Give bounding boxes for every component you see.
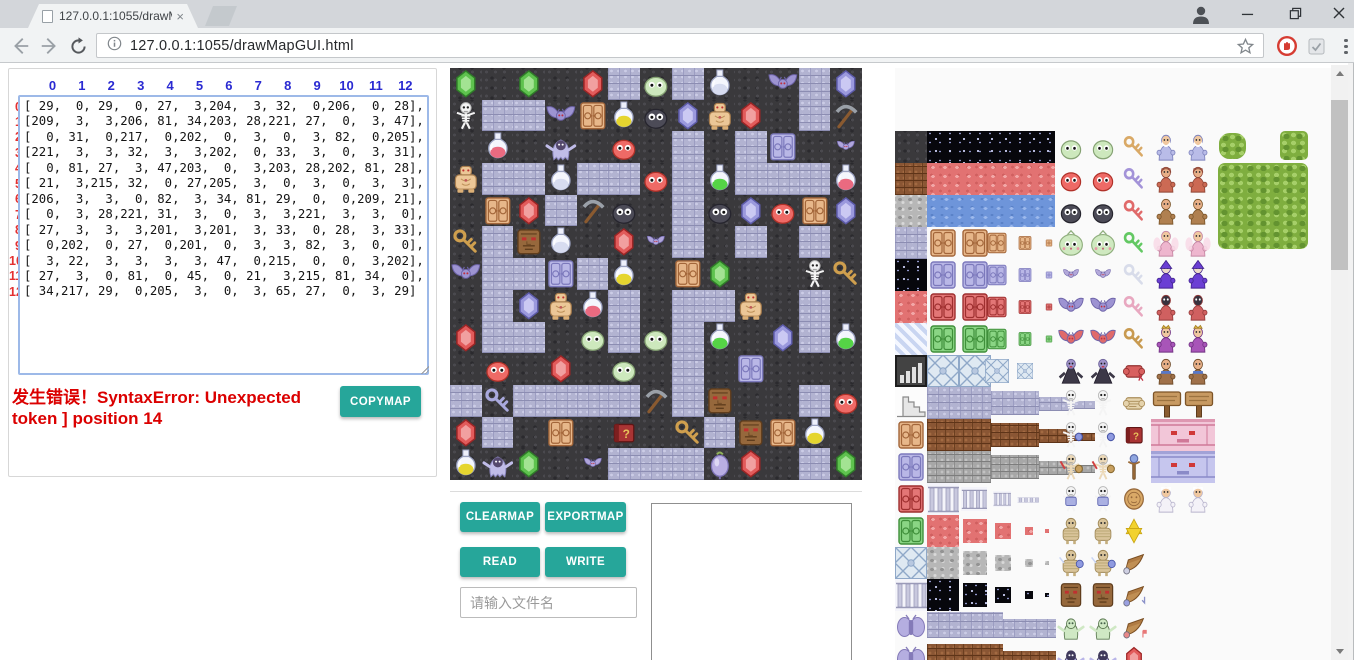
map-tile[interactable] (640, 322, 672, 354)
tileset-cell[interactable] (1045, 593, 1049, 597)
tileset-cell[interactable] (1183, 387, 1215, 419)
tileset-cell[interactable] (1057, 132, 1085, 162)
tileset-cell[interactable] (1121, 165, 1147, 193)
tileset-cell[interactable] (1121, 485, 1147, 513)
tileset-cell[interactable] (1153, 132, 1179, 162)
map-tile[interactable] (799, 131, 831, 163)
tileset-cell[interactable] (961, 487, 987, 511)
tileset-cell[interactable] (995, 555, 1011, 571)
tileset-cell[interactable] (1045, 335, 1053, 343)
map-tile[interactable] (577, 385, 609, 417)
tileset-cell[interactable] (1089, 388, 1117, 418)
map-tile[interactable] (545, 195, 577, 227)
map-tile[interactable] (704, 385, 736, 417)
browser-tab[interactable]: 127.0.0.1:1055/drawMa × (28, 4, 198, 28)
tileset-cell[interactable] (895, 419, 927, 451)
tileset-cell[interactable] (995, 587, 1011, 603)
map-tile[interactable] (640, 163, 672, 195)
tileset-cell[interactable] (1089, 228, 1117, 258)
map-tile[interactable] (704, 163, 736, 195)
map-tile[interactable] (608, 100, 640, 132)
map-tile[interactable] (735, 195, 767, 227)
tileset-cell[interactable] (1185, 260, 1211, 290)
tileset-cell[interactable] (1153, 484, 1179, 514)
tileset-cell[interactable] (985, 263, 1009, 287)
map-tile[interactable] (640, 385, 672, 417)
map-tile[interactable] (735, 322, 767, 354)
tileset-cell[interactable] (1121, 133, 1147, 161)
map-tile[interactable] (577, 417, 609, 449)
map-tile[interactable] (577, 226, 609, 258)
tileset-cell[interactable] (1121, 293, 1147, 321)
extension-check-icon[interactable] (1308, 38, 1325, 55)
tileset-cell[interactable] (1121, 453, 1147, 481)
map-tile[interactable] (830, 322, 862, 354)
map-tile[interactable] (672, 448, 704, 480)
map-matrix-textarea[interactable]: [ 29, 0, 29, 0, 27, 3,204, 3, 32, 0,206,… (18, 95, 429, 375)
map-tile[interactable] (640, 226, 672, 258)
tileset-cell[interactable] (1089, 452, 1117, 482)
read-button[interactable]: READ (460, 547, 540, 577)
map-tile[interactable] (450, 385, 482, 417)
tileset-cell[interactable] (1025, 591, 1033, 599)
map-tile[interactable] (767, 100, 799, 132)
tileset-cell[interactable] (1057, 580, 1085, 610)
map-tile[interactable] (799, 290, 831, 322)
map-canvas[interactable]: ? (450, 68, 862, 480)
map-tile[interactable] (735, 163, 767, 195)
tileset-cell[interactable] (985, 327, 1009, 351)
tileset-cell[interactable] (1003, 619, 1056, 638)
forward-icon[interactable] (38, 34, 62, 58)
tileset-cell[interactable] (895, 387, 927, 419)
tileset-cell[interactable] (1151, 451, 1215, 483)
map-tile[interactable] (767, 385, 799, 417)
tileset-cell[interactable] (1057, 228, 1085, 258)
map-tile[interactable] (672, 353, 704, 385)
map-tile[interactable] (830, 163, 862, 195)
map-tile[interactable] (545, 417, 577, 449)
tileset-cell[interactable] (927, 644, 1003, 660)
map-tile[interactable] (704, 100, 736, 132)
map-tile[interactable] (482, 68, 514, 100)
tileset-cell[interactable] (1089, 484, 1117, 514)
tileset-cell[interactable] (1185, 484, 1211, 514)
map-tile[interactable] (799, 322, 831, 354)
tileset-cell[interactable] (1089, 324, 1117, 354)
map-tile[interactable] (482, 258, 514, 290)
tileset-cell[interactable] (927, 259, 959, 291)
tileset-cell[interactable] (1045, 271, 1053, 279)
map-tile[interactable] (577, 68, 609, 100)
tileset-cell[interactable] (895, 451, 927, 483)
map-tile[interactable] (704, 322, 736, 354)
map-tile[interactable] (830, 448, 862, 480)
map-tile[interactable] (513, 195, 545, 227)
map-tile[interactable] (577, 448, 609, 480)
scroll-up-arrow[interactable] (1331, 65, 1348, 82)
map-tile[interactable] (545, 448, 577, 480)
tileset-cell[interactable] (895, 131, 927, 163)
map-tile[interactable] (482, 448, 514, 480)
clearmap-button[interactable]: CLEARMAP (460, 502, 540, 532)
map-tile[interactable] (799, 353, 831, 385)
tileset-cell[interactable] (895, 547, 927, 579)
map-tile[interactable] (767, 68, 799, 100)
map-tile[interactable] (640, 131, 672, 163)
tileset-cell[interactable] (1089, 548, 1117, 578)
map-tile[interactable] (513, 385, 545, 417)
tileset-cell[interactable] (1185, 324, 1211, 354)
tileset-cell[interactable] (1121, 389, 1147, 417)
map-tile[interactable] (799, 100, 831, 132)
map-tile[interactable] (672, 163, 704, 195)
tileset-cell[interactable] (991, 391, 1039, 415)
tileset-cell[interactable] (1121, 549, 1147, 577)
tileset-cell[interactable] (1057, 292, 1085, 322)
tileset-cell[interactable] (895, 291, 927, 323)
tileset-cell[interactable] (1089, 164, 1117, 194)
tileset-cell[interactable] (991, 423, 1039, 447)
profile-icon[interactable] (1190, 4, 1212, 24)
map-tile[interactable] (450, 322, 482, 354)
tileset-cell[interactable] (1151, 387, 1183, 419)
tileset-cell[interactable] (927, 579, 959, 611)
tileset-cell[interactable] (927, 612, 1003, 638)
map-tile[interactable] (545, 131, 577, 163)
map-tile[interactable] (672, 258, 704, 290)
tileset-cell[interactable] (1057, 612, 1085, 642)
map-tile[interactable] (608, 163, 640, 195)
window-close-button[interactable] (1322, 0, 1354, 26)
tileset-cell[interactable] (1017, 267, 1033, 283)
tileset-cell[interactable] (927, 163, 1055, 195)
tileset-cell[interactable] (1017, 331, 1033, 347)
map-tile[interactable] (608, 131, 640, 163)
tileset-cell[interactable]: ? (1121, 421, 1147, 449)
tileset-cell[interactable] (927, 387, 991, 419)
tileset-cell[interactable] (1057, 164, 1085, 194)
extension-hand-icon[interactable] (1276, 35, 1298, 57)
tileset-cell[interactable] (1185, 132, 1211, 162)
map-tile[interactable] (799, 417, 831, 449)
map-tile[interactable] (482, 290, 514, 322)
map-tile[interactable] (735, 226, 767, 258)
map-tile[interactable] (672, 195, 704, 227)
map-tile[interactable] (450, 195, 482, 227)
map-tile[interactable] (545, 290, 577, 322)
tileset-cell[interactable] (895, 355, 927, 387)
tileset-cell[interactable] (1153, 196, 1179, 226)
map-tile[interactable] (608, 226, 640, 258)
exportmap-button[interactable]: EXPORTMAP (545, 502, 626, 532)
tileset-cell[interactable] (985, 295, 1009, 319)
scrollbar-thumb[interactable] (1331, 100, 1348, 270)
map-tile[interactable] (704, 226, 736, 258)
map-tile[interactable] (577, 258, 609, 290)
tileset-cell[interactable] (1045, 529, 1049, 533)
map-tile[interactable] (640, 448, 672, 480)
tileset-cell[interactable] (1121, 517, 1147, 545)
map-tile[interactable] (704, 258, 736, 290)
window-minimize-button[interactable] (1230, 0, 1264, 26)
window-restore-button[interactable] (1278, 0, 1312, 26)
map-tile[interactable] (482, 322, 514, 354)
tileset-cell[interactable] (895, 259, 927, 291)
map-tile[interactable] (577, 131, 609, 163)
tileset-cell[interactable] (1185, 356, 1211, 386)
map-tile[interactable] (799, 163, 831, 195)
tileset-cell[interactable] (1089, 420, 1117, 450)
tileset-cell[interactable] (895, 643, 927, 660)
map-tile[interactable] (830, 68, 862, 100)
map-tile[interactable] (577, 195, 609, 227)
scroll-down-arrow[interactable] (1331, 643, 1348, 660)
map-tile[interactable] (735, 258, 767, 290)
tileset-cell[interactable] (993, 491, 1011, 507)
tileset-cell[interactable] (927, 323, 959, 355)
map-tile[interactable] (704, 417, 736, 449)
map-tile[interactable] (545, 226, 577, 258)
map-tile[interactable] (735, 448, 767, 480)
tileset-cell[interactable] (927, 515, 959, 547)
map-tile[interactable] (513, 258, 545, 290)
tileset-cell[interactable] (895, 515, 927, 547)
map-tile[interactable] (830, 131, 862, 163)
tileset-cell[interactable] (1151, 419, 1215, 451)
map-tile[interactable] (672, 100, 704, 132)
map-tile[interactable] (767, 353, 799, 385)
map-tile[interactable] (577, 322, 609, 354)
map-tile[interactable] (640, 417, 672, 449)
map-tile[interactable] (545, 322, 577, 354)
map-tile[interactable] (482, 163, 514, 195)
tileset-image[interactable]: ? (895, 68, 1331, 660)
tileset-cell[interactable] (1121, 229, 1147, 257)
tileset-cell[interactable] (895, 579, 927, 611)
tileset-cell[interactable] (1089, 196, 1117, 226)
tileset-cell[interactable] (1057, 516, 1085, 546)
map-tile[interactable] (704, 353, 736, 385)
tileset-cell[interactable] (1057, 196, 1085, 226)
map-tile[interactable] (450, 100, 482, 132)
map-tile[interactable] (450, 417, 482, 449)
tileset-cell[interactable] (1089, 292, 1117, 322)
map-tile[interactable] (513, 417, 545, 449)
menu-dots-icon[interactable] (1343, 36, 1349, 56)
map-tile[interactable] (513, 290, 545, 322)
map-tile[interactable] (640, 100, 672, 132)
map-tile[interactable] (482, 417, 514, 449)
map-tile[interactable] (545, 353, 577, 385)
tileset-cell[interactable] (1057, 548, 1085, 578)
tileset-cell[interactable] (985, 231, 1009, 255)
tileset-cell[interactable] (1121, 581, 1147, 609)
tileset-cell[interactable] (927, 227, 959, 259)
tileset-cell[interactable] (895, 227, 927, 259)
map-tile[interactable] (450, 353, 482, 385)
map-tile[interactable] (482, 195, 514, 227)
tileset-cell[interactable] (895, 483, 927, 515)
textarea-resize-grip[interactable] (421, 366, 429, 374)
map-tile[interactable] (513, 100, 545, 132)
tileset-cell[interactable] (1057, 356, 1085, 386)
map-tile[interactable] (577, 100, 609, 132)
map-tile[interactable] (830, 353, 862, 385)
map-tile[interactable] (513, 131, 545, 163)
tileset-cell[interactable] (1025, 559, 1033, 567)
map-tile[interactable] (608, 448, 640, 480)
tileset-cell[interactable] (927, 483, 959, 515)
map-tile[interactable] (704, 131, 736, 163)
tileset-cell[interactable] (1057, 260, 1085, 290)
tileset-cell[interactable] (963, 519, 987, 543)
copymap-button[interactable]: COPYMAP (340, 386, 421, 417)
map-tile[interactable] (830, 195, 862, 227)
tileset-cell[interactable] (1153, 292, 1179, 322)
map-tile[interactable] (450, 131, 482, 163)
map-tile[interactable] (482, 226, 514, 258)
tileset-cell[interactable] (1153, 356, 1179, 386)
map-tile[interactable] (640, 290, 672, 322)
tileset-cell[interactable] (1153, 324, 1179, 354)
map-tile[interactable] (767, 258, 799, 290)
tileset-cell[interactable] (1045, 239, 1053, 247)
map-tile[interactable] (735, 290, 767, 322)
url-bar[interactable]: 127.0.0.1:1055/drawMapGUI.html (96, 33, 1264, 58)
tileset-cell[interactable] (927, 419, 991, 451)
tileset-cell[interactable] (1057, 452, 1085, 482)
tileset-cell[interactable] (1003, 651, 1056, 660)
map-tile[interactable] (608, 322, 640, 354)
tileset-cell[interactable] (1089, 612, 1117, 642)
map-tile[interactable] (482, 385, 514, 417)
map-tile[interactable] (735, 131, 767, 163)
tileset-cell[interactable] (927, 451, 991, 483)
map-tile[interactable] (799, 226, 831, 258)
tileset-cell[interactable] (895, 195, 927, 227)
tileset-cell[interactable] (1057, 324, 1085, 354)
map-tile[interactable] (704, 68, 736, 100)
tileset-cell[interactable] (1017, 235, 1033, 251)
tileset-cell[interactable] (1185, 164, 1211, 194)
map-tile[interactable] (577, 353, 609, 385)
map-tile[interactable] (830, 290, 862, 322)
map-tile[interactable] (482, 100, 514, 132)
map-tile[interactable] (767, 290, 799, 322)
tileset-cell[interactable] (1045, 561, 1049, 565)
tileset-cell[interactable] (895, 323, 927, 355)
tileset-cell[interactable] (1121, 613, 1147, 641)
map-tile[interactable] (799, 68, 831, 100)
map-tile[interactable] (450, 163, 482, 195)
tileset-cell[interactable] (963, 583, 987, 607)
tileset-cell[interactable] (895, 163, 927, 195)
reload-icon[interactable] (66, 34, 90, 58)
map-tile[interactable] (450, 448, 482, 480)
tileset-cell[interactable] (927, 131, 1055, 163)
tileset-cell[interactable] (1017, 299, 1033, 315)
tileset-cell[interactable] (1089, 132, 1117, 162)
map-tile[interactable] (767, 226, 799, 258)
map-tile[interactable] (640, 353, 672, 385)
tileset-cell[interactable] (963, 551, 987, 575)
tileset-cell[interactable] (1185, 292, 1211, 322)
map-tile[interactable] (482, 353, 514, 385)
map-tile[interactable] (672, 131, 704, 163)
map-tile[interactable] (608, 290, 640, 322)
map-tile[interactable] (799, 258, 831, 290)
map-tile[interactable] (545, 100, 577, 132)
tileset-cell[interactable] (1045, 303, 1053, 311)
map-tile[interactable] (704, 290, 736, 322)
tileset-cell[interactable] (1185, 228, 1211, 258)
map-tile[interactable] (513, 448, 545, 480)
map-tile[interactable] (830, 100, 862, 132)
map-tile[interactable] (545, 163, 577, 195)
map-tile[interactable] (545, 258, 577, 290)
tileset-cell[interactable] (1280, 131, 1308, 160)
map-tile[interactable] (545, 68, 577, 100)
map-tile[interactable] (450, 258, 482, 290)
tileset-cell[interactable] (1017, 497, 1039, 503)
map-tile[interactable] (513, 68, 545, 100)
map-tile[interactable] (482, 131, 514, 163)
write-button[interactable]: WRITE (545, 547, 626, 577)
tileset-cell[interactable] (1121, 197, 1147, 225)
map-tile[interactable]: ? (608, 417, 640, 449)
new-tab-button[interactable] (205, 6, 237, 26)
map-tile[interactable] (450, 68, 482, 100)
map-tile[interactable] (704, 448, 736, 480)
tileset-cell[interactable] (1025, 527, 1033, 535)
map-tile[interactable] (767, 322, 799, 354)
filename-input[interactable] (460, 587, 637, 618)
tileset-cell[interactable] (1153, 164, 1179, 194)
map-tile[interactable] (735, 100, 767, 132)
map-tile[interactable] (577, 290, 609, 322)
map-tile[interactable] (735, 68, 767, 100)
tileset-cell[interactable] (1153, 228, 1179, 258)
tab-close-icon[interactable]: × (176, 9, 184, 24)
map-tile[interactable] (672, 226, 704, 258)
page-scrollbar[interactable] (1331, 65, 1348, 660)
tileset-cell[interactable] (1057, 388, 1085, 418)
tileset-cell[interactable] (1057, 644, 1085, 660)
map-tile[interactable] (767, 448, 799, 480)
map-tile[interactable] (830, 417, 862, 449)
tileset-cell[interactable] (1121, 261, 1147, 289)
tileset-cell[interactable] (1089, 260, 1117, 290)
map-tile[interactable] (767, 163, 799, 195)
tileset-cell[interactable] (995, 523, 1011, 539)
map-tile[interactable] (767, 131, 799, 163)
map-tile[interactable] (672, 417, 704, 449)
tileset-cell[interactable] (991, 455, 1039, 479)
tileset-cell[interactable] (927, 547, 959, 579)
map-tile[interactable] (545, 385, 577, 417)
tileset-cell[interactable] (985, 359, 1009, 383)
tileset-cell[interactable] (1089, 580, 1117, 610)
map-tile[interactable] (450, 226, 482, 258)
map-tile[interactable] (577, 163, 609, 195)
map-tile[interactable] (450, 290, 482, 322)
map-tile[interactable] (767, 417, 799, 449)
tileset-cell[interactable] (1121, 645, 1147, 660)
map-tile[interactable] (799, 385, 831, 417)
info-icon[interactable] (107, 36, 122, 56)
map-tile[interactable] (672, 322, 704, 354)
